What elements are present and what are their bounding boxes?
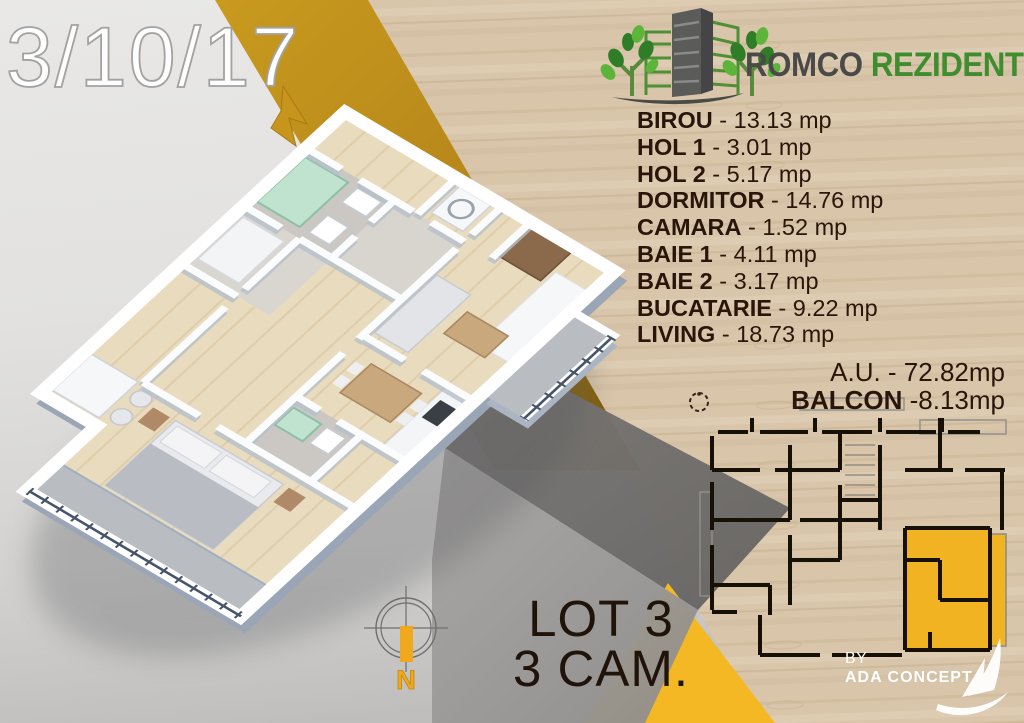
room-row: BAIE 1 - 4.11 mp [637, 241, 883, 268]
room-area: - 3.01 mp [706, 134, 812, 160]
lot-rooms: 3 CAM. [468, 644, 734, 694]
room-name: HOL 2 [637, 161, 706, 187]
room-area: - 18.73 mp [715, 321, 834, 347]
room-row: HOL 2 - 5.17 mp [637, 161, 883, 188]
room-name: HOL 1 [637, 134, 706, 160]
unit-code-title: 3/10/17 [6, 10, 300, 104]
lot-number: LOT 3 [468, 594, 734, 644]
room-area: - 14.76 mp [765, 187, 884, 213]
room-area: - 4.11 mp [713, 241, 817, 267]
room-area: - 3.17 mp [713, 268, 819, 294]
room-name: BIROU [637, 107, 713, 133]
flyer-page: N 3/10/17 ROMCO REZIDENTIAL BIROU - 13.1… [0, 0, 1024, 723]
room-name: BAIE 1 [637, 241, 713, 267]
room-row: BUCATARIE - 9.22 mp [637, 295, 883, 322]
brand-secondary: REZIDENTIAL [871, 46, 1024, 84]
balcony-line: BALCON -8.13mp [680, 386, 1005, 414]
lot-block: LOT 3 3 CAM. [468, 594, 734, 694]
credit-by: BY [845, 649, 973, 668]
room-area: - 5.17 mp [706, 161, 812, 187]
room-area: - 1.52 mp [741, 214, 847, 240]
room-area: - 9.22 mp [772, 295, 878, 321]
room-name: BUCATARIE [637, 295, 772, 321]
usable-area-line: A.U. - 72.82mp [680, 358, 1005, 386]
credit-studio: ADA CONCEPT [845, 668, 973, 687]
room-row: LIVING - 18.73 mp [637, 321, 883, 348]
area-summary: A.U. - 72.82mp BALCON -8.13mp [680, 358, 1005, 414]
balcony-value: -8.13mp [902, 385, 1005, 415]
room-list: BIROU - 13.13 mpHOL 1 - 3.01 mpHOL 2 - 5… [637, 107, 883, 348]
room-row: CAMARA - 1.52 mp [637, 214, 883, 241]
room-area: - 13.13 mp [713, 107, 832, 133]
room-row: HOL 1 - 3.01 mp [637, 134, 883, 161]
room-row: BAIE 2 - 3.17 mp [637, 268, 883, 295]
room-name: CAMARA [637, 214, 741, 240]
room-name: BAIE 2 [637, 268, 713, 294]
credit-block: BY ADA CONCEPT [845, 649, 973, 687]
room-row: BIROU - 13.13 mp [637, 107, 883, 134]
brand-wordmark: ROMCO REZIDENTIAL [745, 46, 1024, 85]
brand-primary: ROMCO [745, 46, 863, 84]
room-name: DORMITOR [637, 187, 765, 213]
room-row: DORMITOR - 14.76 mp [637, 187, 883, 214]
room-name: LIVING [637, 321, 715, 347]
balcony-label: BALCON [791, 385, 902, 415]
